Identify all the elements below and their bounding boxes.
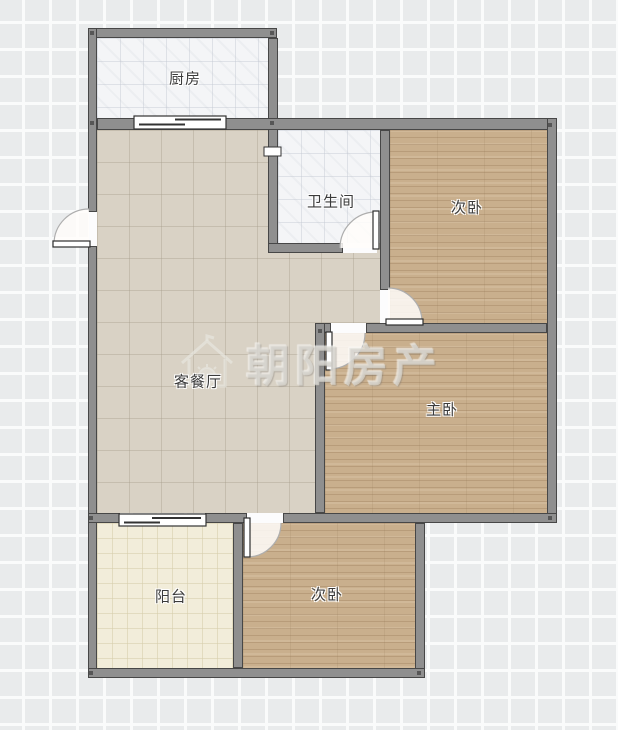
room-label-kitchen: 厨房 bbox=[169, 68, 201, 89]
corner-dot bbox=[270, 121, 274, 125]
corner-dot bbox=[318, 329, 322, 333]
door-leaves bbox=[53, 211, 423, 557]
corner-dot bbox=[270, 31, 274, 35]
corner-dot bbox=[90, 31, 94, 35]
bedroom-top-door-leaf bbox=[386, 319, 423, 325]
corner-dot bbox=[90, 121, 94, 125]
corner-dot bbox=[417, 671, 421, 675]
balcony-sliding-door-icon bbox=[119, 514, 206, 526]
corner-dot bbox=[89, 516, 93, 520]
corner-dot bbox=[548, 516, 552, 520]
door-swing-fills bbox=[54, 209, 422, 557]
floorplan-canvas: 朝阳房产 厨房 卫生间 次卧 客餐厅 主卧 阳台 次卧 bbox=[0, 0, 618, 730]
room-label-bedroom-top: 次卧 bbox=[451, 197, 483, 218]
master-threshold bbox=[331, 323, 366, 333]
bedroom-bottom-threshold bbox=[247, 513, 283, 523]
room-label-balcony: 阳台 bbox=[155, 586, 187, 607]
door-symbol-overlay bbox=[0, 0, 618, 730]
room-label-bedroom-bottom: 次卧 bbox=[311, 584, 343, 605]
room-label-living-dining: 客餐厅 bbox=[174, 371, 222, 392]
wall-vent-icon bbox=[264, 147, 281, 156]
entrance-door-leaf bbox=[53, 241, 90, 247]
master-door-leaf bbox=[326, 332, 332, 370]
corner-dot bbox=[548, 123, 552, 127]
kitchen-sliding-door-icon bbox=[134, 116, 226, 129]
room-label-master-bedroom: 主卧 bbox=[426, 399, 458, 420]
bedroom-bottom-door-leaf bbox=[244, 518, 250, 557]
door-swing-arcs bbox=[54, 209, 422, 557]
room-label-bathroom: 卫生间 bbox=[307, 191, 355, 212]
bathroom-door-leaf bbox=[373, 211, 379, 249]
corner-dot bbox=[89, 671, 93, 675]
door-thresholds bbox=[88, 212, 390, 523]
